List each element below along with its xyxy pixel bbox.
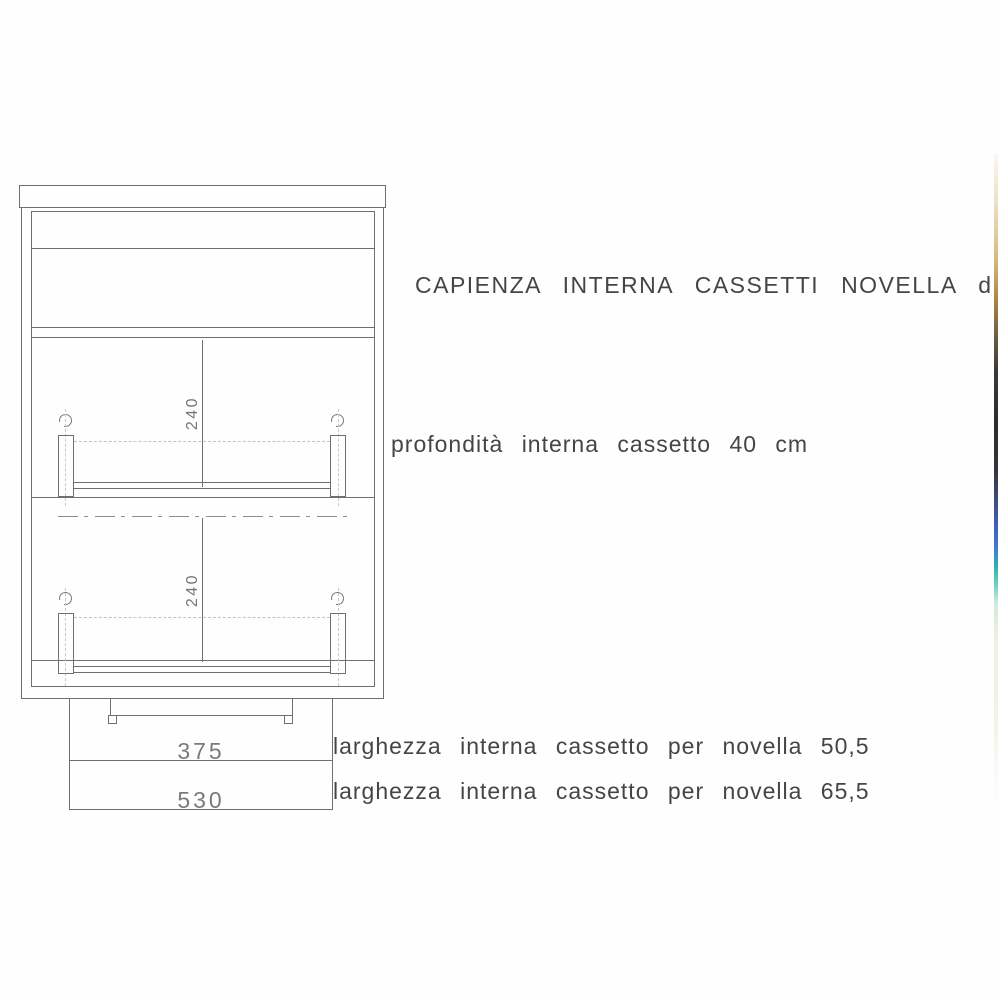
upper-drawer-centerline [202, 340, 203, 487]
fixed-shelf-double-line [31, 327, 375, 338]
lower-drawer-height-dimension: 240 [184, 571, 202, 609]
plinth-left-side [110, 699, 111, 716]
plinth-right-side [292, 699, 293, 716]
depth-note: profondità interna cassetto 40 cm [391, 431, 808, 458]
upper-drawer-height-dimension: 240 [184, 394, 202, 432]
upper-left-runner-bracket [58, 435, 74, 497]
dimension-extension-line-left [69, 699, 70, 810]
drawer-separator-centerline [58, 516, 347, 517]
lower-right-runner-bracket [330, 613, 346, 674]
page-edge-scan-strip [994, 154, 998, 814]
lower-drawer-rail [74, 666, 330, 673]
left-foot [108, 715, 117, 724]
plinth-bottom-line [110, 715, 293, 716]
right-foot [284, 715, 293, 724]
lower-left-runner-bracket [58, 613, 74, 674]
cabinet-inner-outline [31, 211, 375, 687]
scanned-technical-drawing-page: 240 240 375 530 CAPIENZA INTERNA CASSETT… [0, 0, 1000, 1000]
worktop-slab [19, 185, 386, 208]
upper-compartment-bottom-line [31, 497, 375, 498]
width-note-large: larghezza interna cassetto per novella 6… [333, 778, 870, 805]
width-note-small: larghezza interna cassetto per novella 5… [333, 733, 870, 760]
lower-drawer-centerline [202, 518, 203, 662]
outer-width-dimension: 530 [146, 787, 256, 814]
inner-width-dimension: 375 [146, 738, 256, 765]
upper-right-runner-bracket [330, 435, 346, 497]
upper-drawer-rail [74, 482, 330, 489]
upper-drawer-top-dashed-line [74, 441, 330, 442]
lower-compartment-bottom-line [31, 660, 375, 661]
lower-drawer-top-dashed-line [74, 617, 330, 618]
page-title: CAPIENZA INTERNA CASSETTI NOVELLA dipiù [415, 272, 1000, 299]
top-drawer-divider-line [31, 248, 375, 249]
